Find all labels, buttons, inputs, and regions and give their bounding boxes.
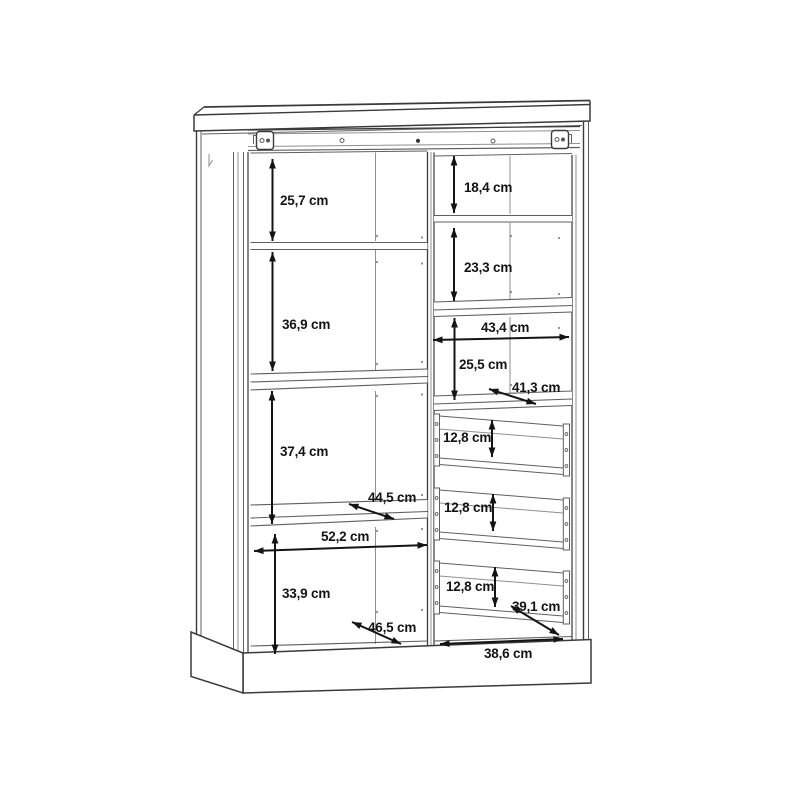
dimension-left-top: 25,7 cm [269, 159, 328, 241]
door-roller-left [254, 132, 274, 150]
dimension-left-upper-mid: 36,9 cm [269, 252, 330, 371]
dimension-label-right-top: 18,4 cm [464, 180, 512, 195]
dimension-label-drawer-1-height: 12,8 cm [443, 430, 491, 445]
plinth-left-face [191, 632, 243, 693]
dimension-label-left-lower-mid: 37,4 cm [280, 444, 328, 459]
left-panel-hook-detail [209, 154, 213, 166]
left-side-panel [197, 131, 249, 653]
drawer-2 [434, 488, 570, 550]
dimension-label-right-bottom-width: 38,6 cm [484, 646, 532, 661]
dimension-label-right-second: 23,3 cm [464, 260, 512, 275]
drawer-2-left-rail [434, 488, 440, 540]
rail-hole-2 [416, 139, 420, 143]
dimension-label-left-shelf-depth: 44,5 cm [368, 490, 416, 505]
dimension-label-left-bottom-depth: 46,5 cm [368, 620, 416, 635]
rail-hole-1 [340, 139, 344, 143]
product-dimension-image: 25,7 cm36,9 cm37,4 cm33,9 cm44,5 cm52,2 … [0, 0, 800, 800]
dimension-annotations: 25,7 cm36,9 cm37,4 cm33,9 cm44,5 cm52,2 … [254, 156, 569, 661]
dimension-drawer-3-height: 12,8 cm [446, 567, 498, 607]
dimension-left-bottom: 33,9 cm [272, 534, 331, 654]
dimension-left-bottom-depth: 46,5 cm [352, 620, 416, 644]
drawer-2-right-rail [563, 498, 569, 550]
sliding-door-rail [248, 127, 580, 151]
left-compartment-top [251, 151, 428, 153]
dimension-label-right-width: 43,4 cm [481, 320, 529, 335]
dimension-label-drawer-2-height: 12,8 cm [444, 500, 492, 515]
cabinet-dimension-diagram: 25,7 cm36,9 cm37,4 cm33,9 cm44,5 cm52,2 … [0, 0, 800, 800]
rail-hole-3 [491, 139, 495, 143]
dimension-label-left-width: 52,2 cm [321, 529, 369, 544]
dimension-right-top: 18,4 cm [451, 156, 513, 213]
right-side-panel [572, 122, 589, 641]
dimension-label-drawer-depth: 39,1 cm [512, 599, 560, 614]
shelf-left-2 [251, 369, 428, 390]
dimension-label-left-bottom: 33,9 cm [282, 586, 330, 601]
shelf-left-1 [251, 243, 428, 250]
rail-inner-lines [248, 131, 580, 147]
dimension-drawer-2-height: 12,8 cm [444, 494, 496, 531]
dimension-label-left-upper-mid: 36,9 cm [282, 317, 330, 332]
shelf-right-1 [434, 216, 572, 223]
drawer-1-left-rail [434, 414, 440, 466]
drawer-3-left-rail [434, 561, 440, 614]
dimension-label-right-third: 25,5 cm [459, 357, 507, 372]
drawer-1 [434, 414, 570, 476]
door-roller-right [552, 131, 572, 149]
dimension-drawer-1-height: 12,8 cm [443, 420, 495, 457]
dimension-label-right-shelf-depth: 41,3 cm [512, 380, 560, 395]
plinth-front-face [243, 640, 591, 694]
dimension-label-drawer-3-height: 12,8 cm [446, 579, 494, 594]
drawer-3-right-rail [563, 571, 569, 624]
drawer-1-right-rail [563, 424, 569, 476]
center-divider [428, 152, 435, 645]
dimension-right-second: 23,3 cm [451, 228, 513, 301]
rail-bottom-edge [248, 148, 580, 151]
dimension-left-width: 52,2 cm [254, 529, 427, 554]
dimension-drawer-depth: 39,1 cm [511, 599, 560, 635]
right-compartment-top [434, 154, 572, 157]
dimension-label-left-top: 25,7 cm [280, 193, 328, 208]
